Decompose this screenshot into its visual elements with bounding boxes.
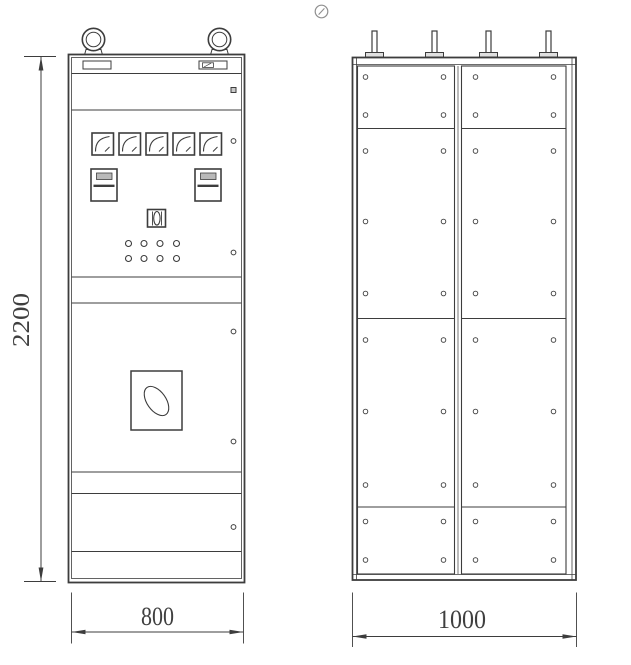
lifting-eye bbox=[82, 28, 104, 55]
analog-meter bbox=[146, 133, 168, 155]
lifting-eye bbox=[208, 28, 230, 55]
analog-meter bbox=[92, 133, 114, 155]
rear-view-cabinet bbox=[353, 31, 577, 580]
dimension-front-width: 800 bbox=[72, 593, 244, 644]
arrowhead-down bbox=[39, 568, 44, 582]
arrowhead-right bbox=[230, 630, 244, 635]
dimension-height: 2200 bbox=[9, 57, 56, 582]
arrowhead-right bbox=[563, 634, 577, 639]
arrowhead-up bbox=[39, 57, 44, 71]
arrowhead-left bbox=[72, 630, 86, 635]
front-view-cabinet bbox=[69, 28, 245, 582]
dimension-rear-width: 1000 bbox=[353, 593, 577, 648]
circled-slash-icon bbox=[315, 5, 328, 18]
analog-meter bbox=[173, 133, 195, 155]
door-lock bbox=[231, 88, 236, 93]
dimension-height-label: 2200 bbox=[9, 293, 35, 347]
arrowhead-left bbox=[353, 634, 367, 639]
dimension-front-width-label: 800 bbox=[141, 602, 174, 631]
dimension-rear-width-label: 1000 bbox=[438, 605, 486, 634]
terminal-stud bbox=[540, 31, 558, 57]
analog-meter bbox=[200, 133, 222, 155]
cad-canvas: 2200 800 1000 bbox=[0, 0, 631, 665]
analog-meter bbox=[119, 133, 141, 155]
terminal-stud bbox=[426, 31, 444, 57]
panel-meter-row bbox=[92, 133, 222, 155]
terminal-studs bbox=[366, 31, 558, 57]
terminal-stud bbox=[366, 31, 384, 57]
energy-meter bbox=[91, 169, 117, 201]
energy-meter bbox=[195, 169, 221, 201]
terminal-stud bbox=[480, 31, 498, 57]
